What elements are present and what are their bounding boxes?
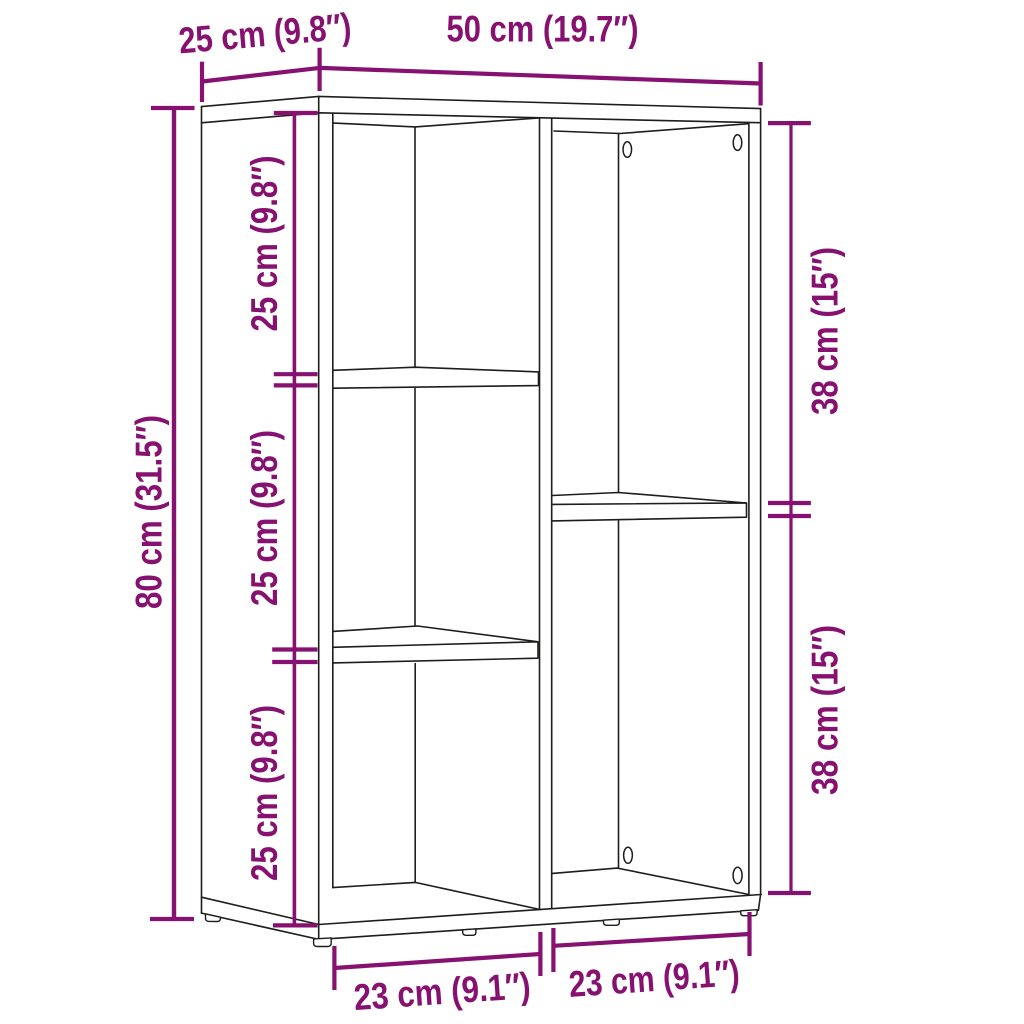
- svg-text:80 cm (31.5″): 80 cm (31.5″): [129, 415, 170, 609]
- svg-text:25 cm (9.8″): 25 cm (9.8″): [244, 430, 285, 606]
- svg-text:38 cm (15″): 38 cm (15″): [805, 625, 846, 795]
- svg-text:25 cm (9.8″): 25 cm (9.8″): [244, 705, 285, 881]
- svg-text:50 cm (19.7″): 50 cm (19.7″): [447, 9, 639, 50]
- svg-text:25 cm (9.8″): 25 cm (9.8″): [244, 156, 285, 332]
- svg-text:38 cm (15″): 38 cm (15″): [805, 247, 846, 415]
